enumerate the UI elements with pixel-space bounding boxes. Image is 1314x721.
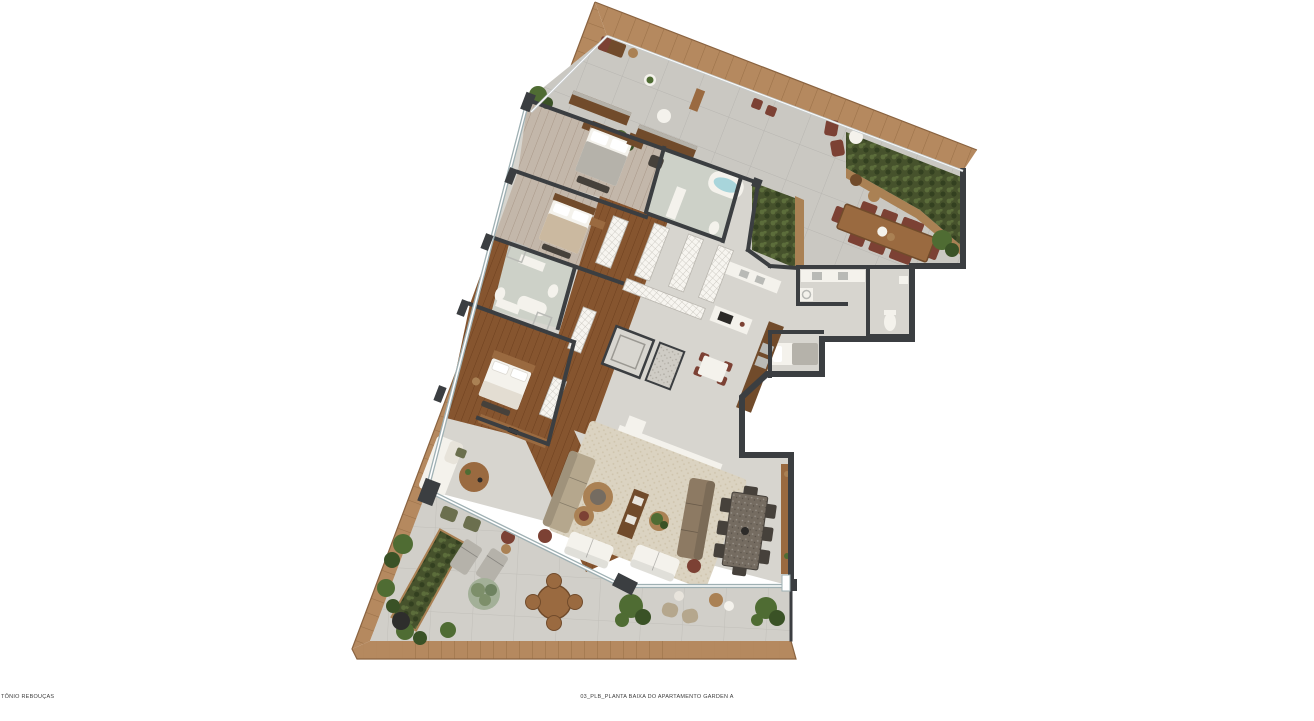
wood-stool-1 (850, 174, 862, 186)
black-pot (392, 612, 410, 630)
wood-stool-2 (868, 190, 880, 202)
page: TÔNIO REBOUÇAS 03_PLB_PLANTA BAIXA DO AP… (0, 0, 1314, 721)
floor-plan (0, 0, 1314, 721)
side-table (628, 48, 638, 58)
terrace-door (782, 575, 790, 591)
round-table (657, 109, 671, 123)
caption-bottom-left: TÔNIO REBOUÇAS (1, 694, 54, 701)
hedge2-wood-trim (795, 196, 804, 268)
pot-plant (647, 77, 654, 84)
round-green-planter (468, 578, 500, 610)
laundry-sink-2 (838, 272, 848, 280)
pouf-3 (687, 559, 701, 573)
plant-side-table (649, 511, 669, 531)
laundry-counter (801, 270, 865, 282)
laundry-sink-1 (812, 272, 822, 280)
caption-bottom-center: 03_PLB_PLANTA BAIXA DO APARTAMENTO GARDE… (577, 694, 737, 701)
pouf-2 (538, 529, 552, 543)
